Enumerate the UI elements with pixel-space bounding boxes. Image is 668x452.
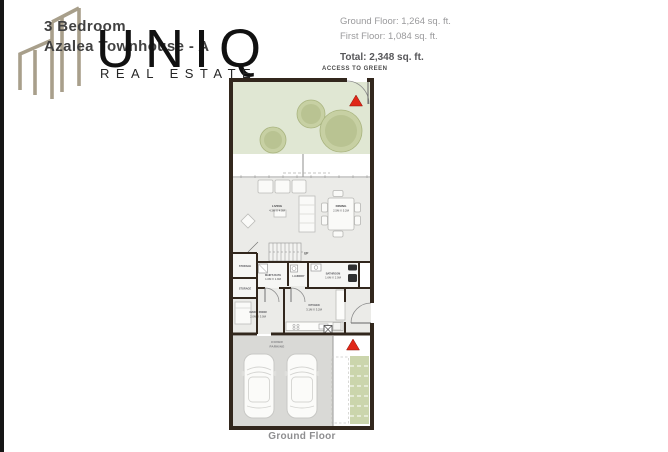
living-dims: 4.3M X 4.0M (269, 209, 286, 213)
tree-icon (297, 100, 325, 128)
maids-room-dims: 2.0M X 3.0M (250, 315, 267, 319)
dining-table (328, 198, 354, 230)
tree-icon (260, 127, 286, 153)
maids-bath-dims: 1.0M X 1.9M (265, 277, 282, 281)
utility-box (324, 326, 332, 334)
storage-upper-label: STORAGE (239, 265, 252, 268)
tv-unit (299, 196, 315, 232)
kitchen-dims: 3.1M X 3.2M (306, 308, 323, 312)
parking-label-line2: PARKING (269, 345, 284, 349)
maids-bath-fixtures (259, 264, 268, 273)
car-icon (285, 354, 320, 418)
floorplan: LIVING 4.3M X 4.0M DINING 2.5M X 5.2M UP (227, 76, 377, 432)
first-floor-area: First Floor: 1,084 sq. ft. (340, 29, 451, 44)
car-icon (242, 354, 277, 418)
floorplan-brochure: { "brand": { "name": "UNIQ", "tagline": … (0, 0, 668, 452)
dining-dims: 2.5M X 5.2M (333, 209, 350, 213)
plan-caption: Ground Floor (227, 431, 377, 442)
brand-tagline: REAL ESTATE (100, 66, 257, 81)
total-area: Total: 2,348 sq. ft. (340, 50, 451, 65)
dining-label: DINING (336, 204, 347, 208)
terrace (233, 154, 371, 179)
parking-label-line1: COVER (271, 340, 283, 344)
page-left-border (0, 0, 4, 452)
laundry-label: LAUNDRY (292, 275, 304, 278)
storage-lower-label: STORAGE (239, 288, 252, 291)
living-label: LIVING (272, 204, 283, 208)
area-summary: Ground Floor: 1,264 sq. ft. First Floor:… (340, 14, 451, 65)
vanity (311, 264, 321, 271)
floorplan-drawing: LIVING 4.3M X 4.0M DINING 2.5M X 5.2M UP (227, 76, 377, 432)
washer-icon (291, 265, 298, 272)
tree-icon (320, 110, 362, 152)
access-to-green-label: ACCESS TO GREEN (322, 66, 387, 72)
garden-area (233, 82, 371, 154)
bathroom-dims: 1.6M X 2.0M (325, 276, 342, 280)
ground-floor-area: Ground Floor: 1,264 sq. ft. (340, 14, 451, 29)
stairs (269, 243, 303, 261)
fridge (333, 323, 341, 331)
